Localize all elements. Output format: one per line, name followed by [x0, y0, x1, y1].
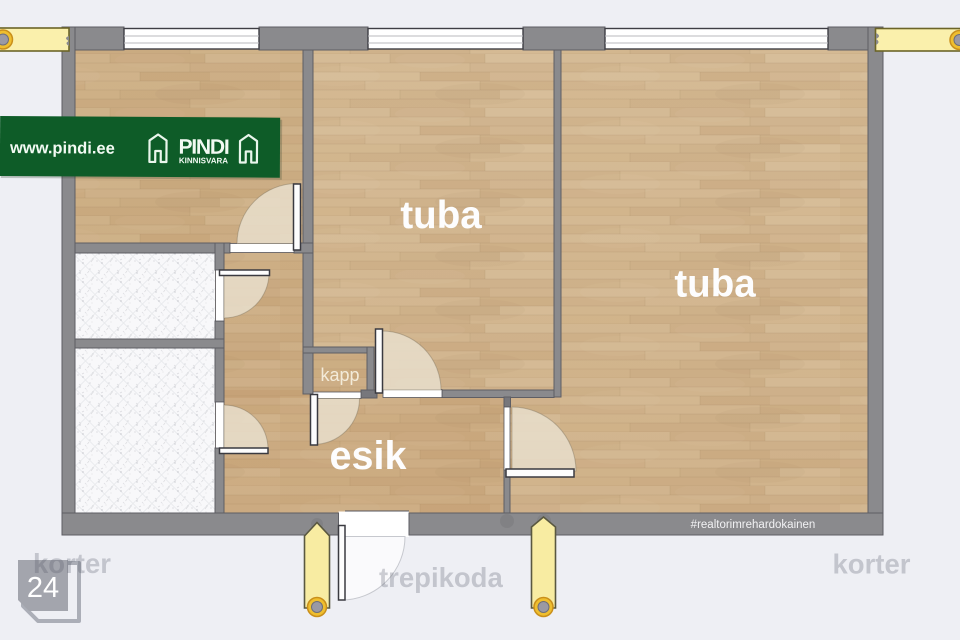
- svg-text:KINNISVARA: KINNISVARA: [179, 156, 228, 165]
- svg-text:tuba: tuba: [400, 194, 482, 237]
- svg-text:trepikoda: trepikoda: [379, 562, 503, 593]
- svg-text:#realtorimrehardokainen: #realtorimrehardokainen: [691, 519, 816, 531]
- svg-text:www.pindi.ee: www.pindi.ee: [9, 139, 115, 158]
- svg-text:korter: korter: [33, 548, 111, 579]
- svg-text:kapp: kapp: [320, 365, 359, 385]
- svg-text:korter: korter: [833, 549, 911, 580]
- svg-text:esik: esik: [330, 434, 407, 478]
- svg-text:tuba: tuba: [674, 263, 756, 306]
